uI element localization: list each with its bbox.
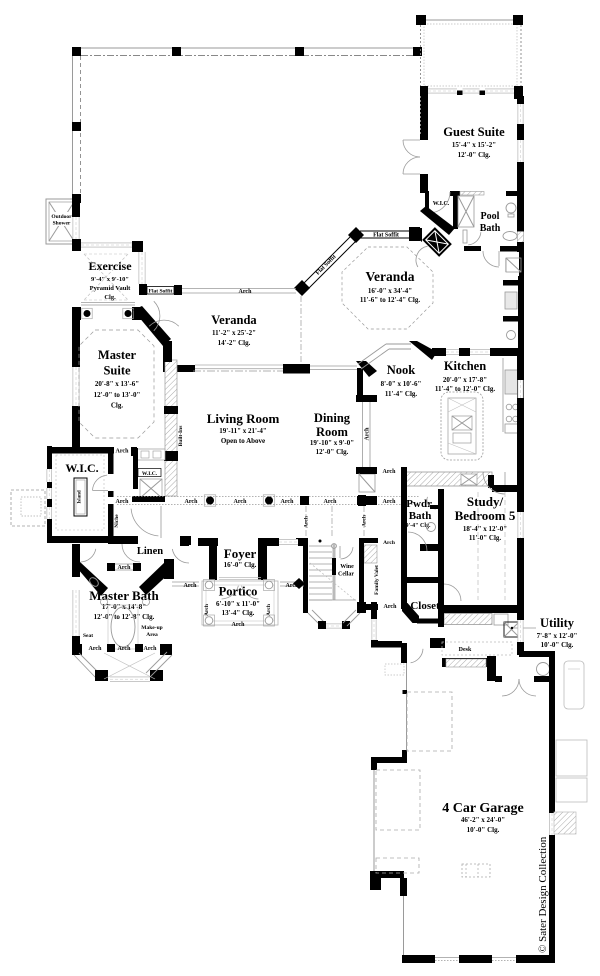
svg-text:Arch: Arch [281, 499, 295, 505]
svg-text:Arch: Arch [116, 499, 130, 505]
svg-text:Arch: Arch [383, 469, 397, 475]
svg-text:14'-2" Clg.: 14'-2" Clg. [218, 339, 251, 347]
svg-text:Pyramid Vault: Pyramid Vault [90, 285, 131, 292]
svg-text:Arch: Arch [362, 515, 368, 527]
svg-text:11'-4" to 12'-0" Clg.: 11'-4" to 12'-0" Clg. [435, 385, 496, 393]
svg-text:Arch: Arch [204, 604, 210, 616]
svg-text:Room: Room [316, 425, 349, 439]
svg-text:9'-4" x 9'-10": 9'-4" x 9'-10" [91, 276, 129, 283]
svg-text:19'-11" x 21'-4": 19'-11" x 21'-4" [219, 427, 267, 435]
svg-text:W.I.C.: W.I.C. [65, 461, 98, 475]
svg-text:12'-0" Clg.: 12'-0" Clg. [458, 151, 491, 159]
svg-text:Foyer: Foyer [224, 546, 257, 561]
svg-text:Veranda: Veranda [365, 269, 414, 284]
svg-text:Arch: Arch [234, 499, 248, 505]
svg-text:Clg.: Clg. [111, 402, 124, 410]
svg-text:Desk: Desk [459, 647, 472, 653]
svg-text:20'-0" x 17'-8": 20'-0" x 17'-8" [443, 376, 487, 384]
svg-text:© Sater Design Collection: © Sater Design Collection [537, 836, 549, 953]
svg-text:Linen: Linen [137, 546, 163, 557]
svg-text:Study/: Study/ [467, 494, 504, 509]
svg-text:Living Room: Living Room [207, 411, 280, 426]
svg-text:Arch: Arch [184, 583, 198, 589]
svg-text:Closet: Closet [410, 600, 440, 612]
svg-text:Arch: Arch [118, 565, 132, 571]
svg-text:Veranda: Veranda [211, 313, 257, 327]
svg-text:Exercise: Exercise [88, 259, 132, 273]
svg-text:16'-0" x 34'-4": 16'-0" x 34'-4" [368, 287, 412, 295]
svg-text:Built-Ins: Built-Ins [178, 426, 184, 447]
svg-text:Wine: Wine [340, 564, 354, 570]
svg-text:Bath: Bath [409, 510, 432, 522]
svg-text:Arch: Arch [383, 499, 397, 505]
svg-text:Suite: Suite [103, 364, 131, 378]
svg-text:Arch: Arch [266, 604, 272, 616]
svg-text:Kitchen: Kitchen [444, 359, 486, 373]
svg-text:11'-2" x 25'-2": 11'-2" x 25'-2" [212, 329, 256, 337]
svg-text:Arch: Arch [185, 499, 199, 505]
svg-text:Open to Above: Open to Above [221, 437, 265, 445]
svg-text:Flat Soffit: Flat Soffit [373, 233, 399, 239]
svg-text:8'-0" x 10'-6": 8'-0" x 10'-6" [381, 380, 422, 388]
svg-text:Shower: Shower [53, 221, 71, 227]
svg-text:11'-6" to 12'-4" Clg.: 11'-6" to 12'-4" Clg. [360, 296, 421, 304]
svg-text:Island: Island [78, 490, 83, 504]
svg-text:12'-0" to 12'-8" Clg.: 12'-0" to 12'-8" Clg. [94, 613, 155, 621]
svg-text:Niche: Niche [114, 514, 120, 528]
svg-text:Cellar: Cellar [338, 572, 354, 578]
svg-text:Dining: Dining [314, 411, 351, 425]
svg-text:12'-0" to 13'-0": 12'-0" to 13'-0" [94, 391, 141, 399]
svg-text:Area: Area [146, 632, 158, 638]
svg-text:Outdoor: Outdoor [51, 214, 72, 220]
svg-text:Arch: Arch [304, 516, 310, 528]
svg-text:18'-4" x 12'-0": 18'-4" x 12'-0" [463, 525, 507, 533]
svg-text:Bath: Bath [480, 223, 501, 234]
svg-text:Pwdr.: Pwdr. [406, 498, 434, 510]
svg-text:Arch: Arch [383, 540, 395, 546]
svg-text:Arch: Arch [239, 289, 253, 295]
svg-text:Arch: Arch [365, 427, 371, 441]
svg-text:Flat Soffit: Flat Soffit [149, 289, 173, 295]
svg-text:Pool: Pool [481, 211, 500, 222]
svg-text:Arch: Arch [89, 646, 103, 652]
svg-text:16'-0" Clg.: 16'-0" Clg. [224, 561, 257, 569]
svg-text:Make-up: Make-up [141, 625, 162, 631]
svg-text:Arch: Arch [232, 622, 246, 628]
svg-text:Arch: Arch [118, 646, 132, 652]
svg-text:Family Valet: Family Valet [374, 565, 380, 595]
svg-text:Clg.: Clg. [104, 294, 116, 301]
svg-text:11'-0" Clg.: 11'-0" Clg. [469, 534, 502, 542]
svg-text:Seat: Seat [83, 633, 93, 639]
svg-text:12'-0" Clg.: 12'-0" Clg. [316, 448, 349, 456]
svg-text:Arch: Arch [144, 646, 158, 652]
svg-text:6'-10" x 11'-0": 6'-10" x 11'-0" [216, 600, 260, 608]
svg-text:15'-4" x 15'-2": 15'-4" x 15'-2" [452, 141, 496, 149]
svg-text:11'-4" Clg.: 11'-4" Clg. [385, 390, 418, 398]
svg-text:Bedroom 5: Bedroom 5 [455, 508, 516, 523]
svg-text:20'-8" x 13'-6": 20'-8" x 13'-6" [95, 380, 139, 388]
svg-text:Arch: Arch [116, 449, 130, 455]
svg-text:13'-4" Clg.: 13'-4" Clg. [222, 609, 255, 617]
svg-text:19'-10" x 9'-0": 19'-10" x 9'-0" [310, 439, 354, 447]
svg-text:Portico: Portico [219, 585, 258, 599]
svg-text:46'-2" x 24'-0": 46'-2" x 24'-0" [461, 816, 505, 824]
svg-text:10'-0" Clg.: 10'-0" Clg. [467, 826, 500, 834]
svg-text:Guest Suite: Guest Suite [443, 125, 505, 139]
svg-text:4 Car Garage: 4 Car Garage [442, 801, 523, 816]
svg-text:Arch: Arch [324, 499, 338, 505]
svg-text:Arch: Arch [384, 604, 398, 610]
svg-text:W.I.C.: W.I.C. [142, 471, 158, 477]
svg-text:7'-8" x 12'-0": 7'-8" x 12'-0" [537, 632, 578, 640]
svg-text:Utility: Utility [540, 616, 575, 630]
svg-text:10'-0" Clg.: 10'-0" Clg. [541, 641, 574, 649]
svg-text:Master: Master [98, 348, 137, 362]
svg-text:Nook: Nook [387, 363, 416, 377]
svg-text:W.I.C.: W.I.C. [433, 201, 450, 207]
